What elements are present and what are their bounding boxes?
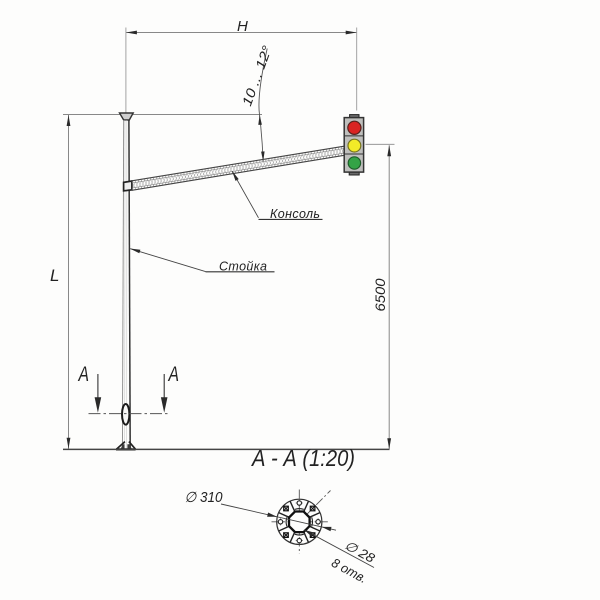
svg-text:Консоль: Консоль <box>270 207 320 221</box>
svg-text:L: L <box>50 266 59 285</box>
svg-text:A: A <box>167 362 179 386</box>
svg-text:∅ 310: ∅ 310 <box>185 490 223 506</box>
svg-text:A: A <box>77 362 89 386</box>
svg-text:А - А (1:20): А - А (1:20) <box>250 445 355 471</box>
svg-text:6500: 6500 <box>373 278 388 312</box>
svg-text:H: H <box>237 18 248 35</box>
svg-text:Стойка: Стойка <box>219 260 267 274</box>
